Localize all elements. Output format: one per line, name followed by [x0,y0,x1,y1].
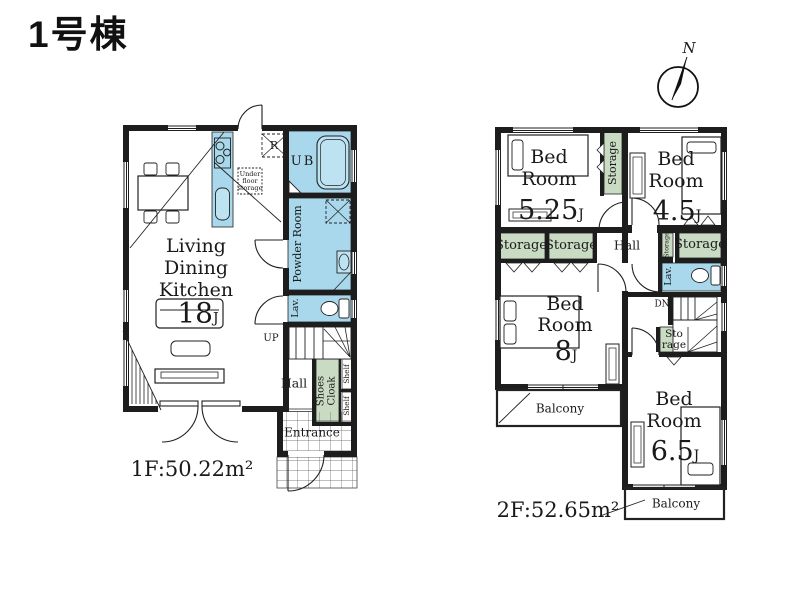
compass [658,57,698,107]
shoes-cloak-label: Shoes Cloak [317,376,338,406]
bedroom-65-door-arc [632,328,659,355]
ldk-size-label: 18J [177,298,218,327]
bedroom-8-size-label: 8J [555,338,578,366]
bedroom-8-label-line1: Bed [546,295,583,315]
bedroom-525-size-value: 5.25 [518,195,578,226]
bedroom-65-label-line2: Room [646,412,701,432]
hall-label-1f: Hall [281,376,307,389]
entrance-label: Entrance [284,427,340,440]
ldk-label-line2: Dining [164,259,228,279]
balcony-right-label: Balcony [652,498,700,511]
floor1-stairs [289,327,351,359]
ldk-size-unit: J [213,310,219,326]
hall-door-arc [255,296,283,324]
toilet-tank-1f [339,299,349,318]
bedroom-45-size-unit: J [696,208,702,224]
chair [144,163,157,175]
storage-tall-label: Storage [607,141,619,185]
dn-label: DN [654,300,669,309]
under-floor-storage-label: Under floor storage [238,171,263,191]
bedroom-525-size-unit: J [578,207,584,223]
compass-north-label: N [682,41,695,57]
pillow [512,140,523,170]
bedroom-45-size-value: 4.5 [653,196,696,227]
storage-stair-door-marker [667,357,681,365]
shelf-upper-label: Shelf [343,364,351,384]
up-label: UP [263,334,278,345]
storage-b-door-marker [554,263,588,272]
bedroom-65-size-label: 6.5J [651,438,700,466]
coffee-table [171,341,210,356]
bedroom-8-door-arc [598,264,626,292]
storage-a-door-marker [506,263,540,272]
floorplan-page: 1号棟 N Living Dining Kitchen 18J UB R Und… [0,0,800,600]
pillow [504,301,516,321]
ub-label: UB [291,155,316,169]
page-title: 1号棟 [28,16,129,55]
storage-stair-line2: rage [662,340,686,351]
storage-narrow-label: Storage [664,232,671,258]
storage-b-label: Storage [545,239,597,253]
bedroom-8-size-value: 8 [555,336,572,367]
floor1-area-label: 1F:50.22m² [131,458,254,480]
lav-label-2f: Lav. [664,266,674,285]
hall-label-2f: Hall [614,238,640,251]
lav-door-arc-2f [632,264,660,292]
bathtub [317,136,349,189]
dining-table [138,176,188,210]
ufs-line3: storage [238,184,263,191]
floor2-area-label: 2F:52.65m² [497,499,620,521]
storage-a-label: Storage [495,239,547,253]
corner-hatch [132,350,156,404]
kitchen-sink [216,188,230,220]
bedroom-525-label-line2: Room [521,170,576,190]
bedroom-65-size-value: 6.5 [651,436,694,467]
toilet-tank-2f [711,266,720,285]
bedroom-525-label-line1: Bed [530,148,567,168]
balcony-left-label: Balcony [536,403,584,416]
porch-tiles [277,457,357,488]
chair [166,163,179,175]
bedroom-45-label-line1: Bed [657,150,694,170]
pillow [504,324,516,344]
toilet-bowl-1f [321,302,338,316]
ldk-size-value: 18 [177,296,213,329]
ldk-label-line1: Living [166,237,226,257]
bedroom-65-size-unit: J [694,448,700,464]
refrigerator-label: R [270,140,278,152]
bedroom-65-label-line1: Bed [655,390,692,410]
storage-c-label: Storage [674,238,726,252]
chair [166,211,179,223]
lav-label-1f: Lav. [291,298,301,317]
powder-room-label: Powder Room [292,205,304,282]
shelf-lower-label: Shelf [343,396,351,416]
toilet-bowl-2f [692,269,709,283]
bedroom-8-size-unit: J [572,348,578,364]
bedroom-8-label-line2: Room [537,316,592,336]
shoes-cloak-line2: Cloak [327,376,338,406]
bedroom-45-size-label: 4.5J [653,198,702,226]
powder-door-arc [255,240,283,268]
storage-stair-label: Sto rage [662,329,686,351]
entrance-step-line [285,409,312,412]
bedroom-525-size-label: 5.25J [518,197,584,225]
bedroom-45-label-line2: Room [648,172,703,192]
shoes-cloak-line1: Shoes [317,376,328,406]
